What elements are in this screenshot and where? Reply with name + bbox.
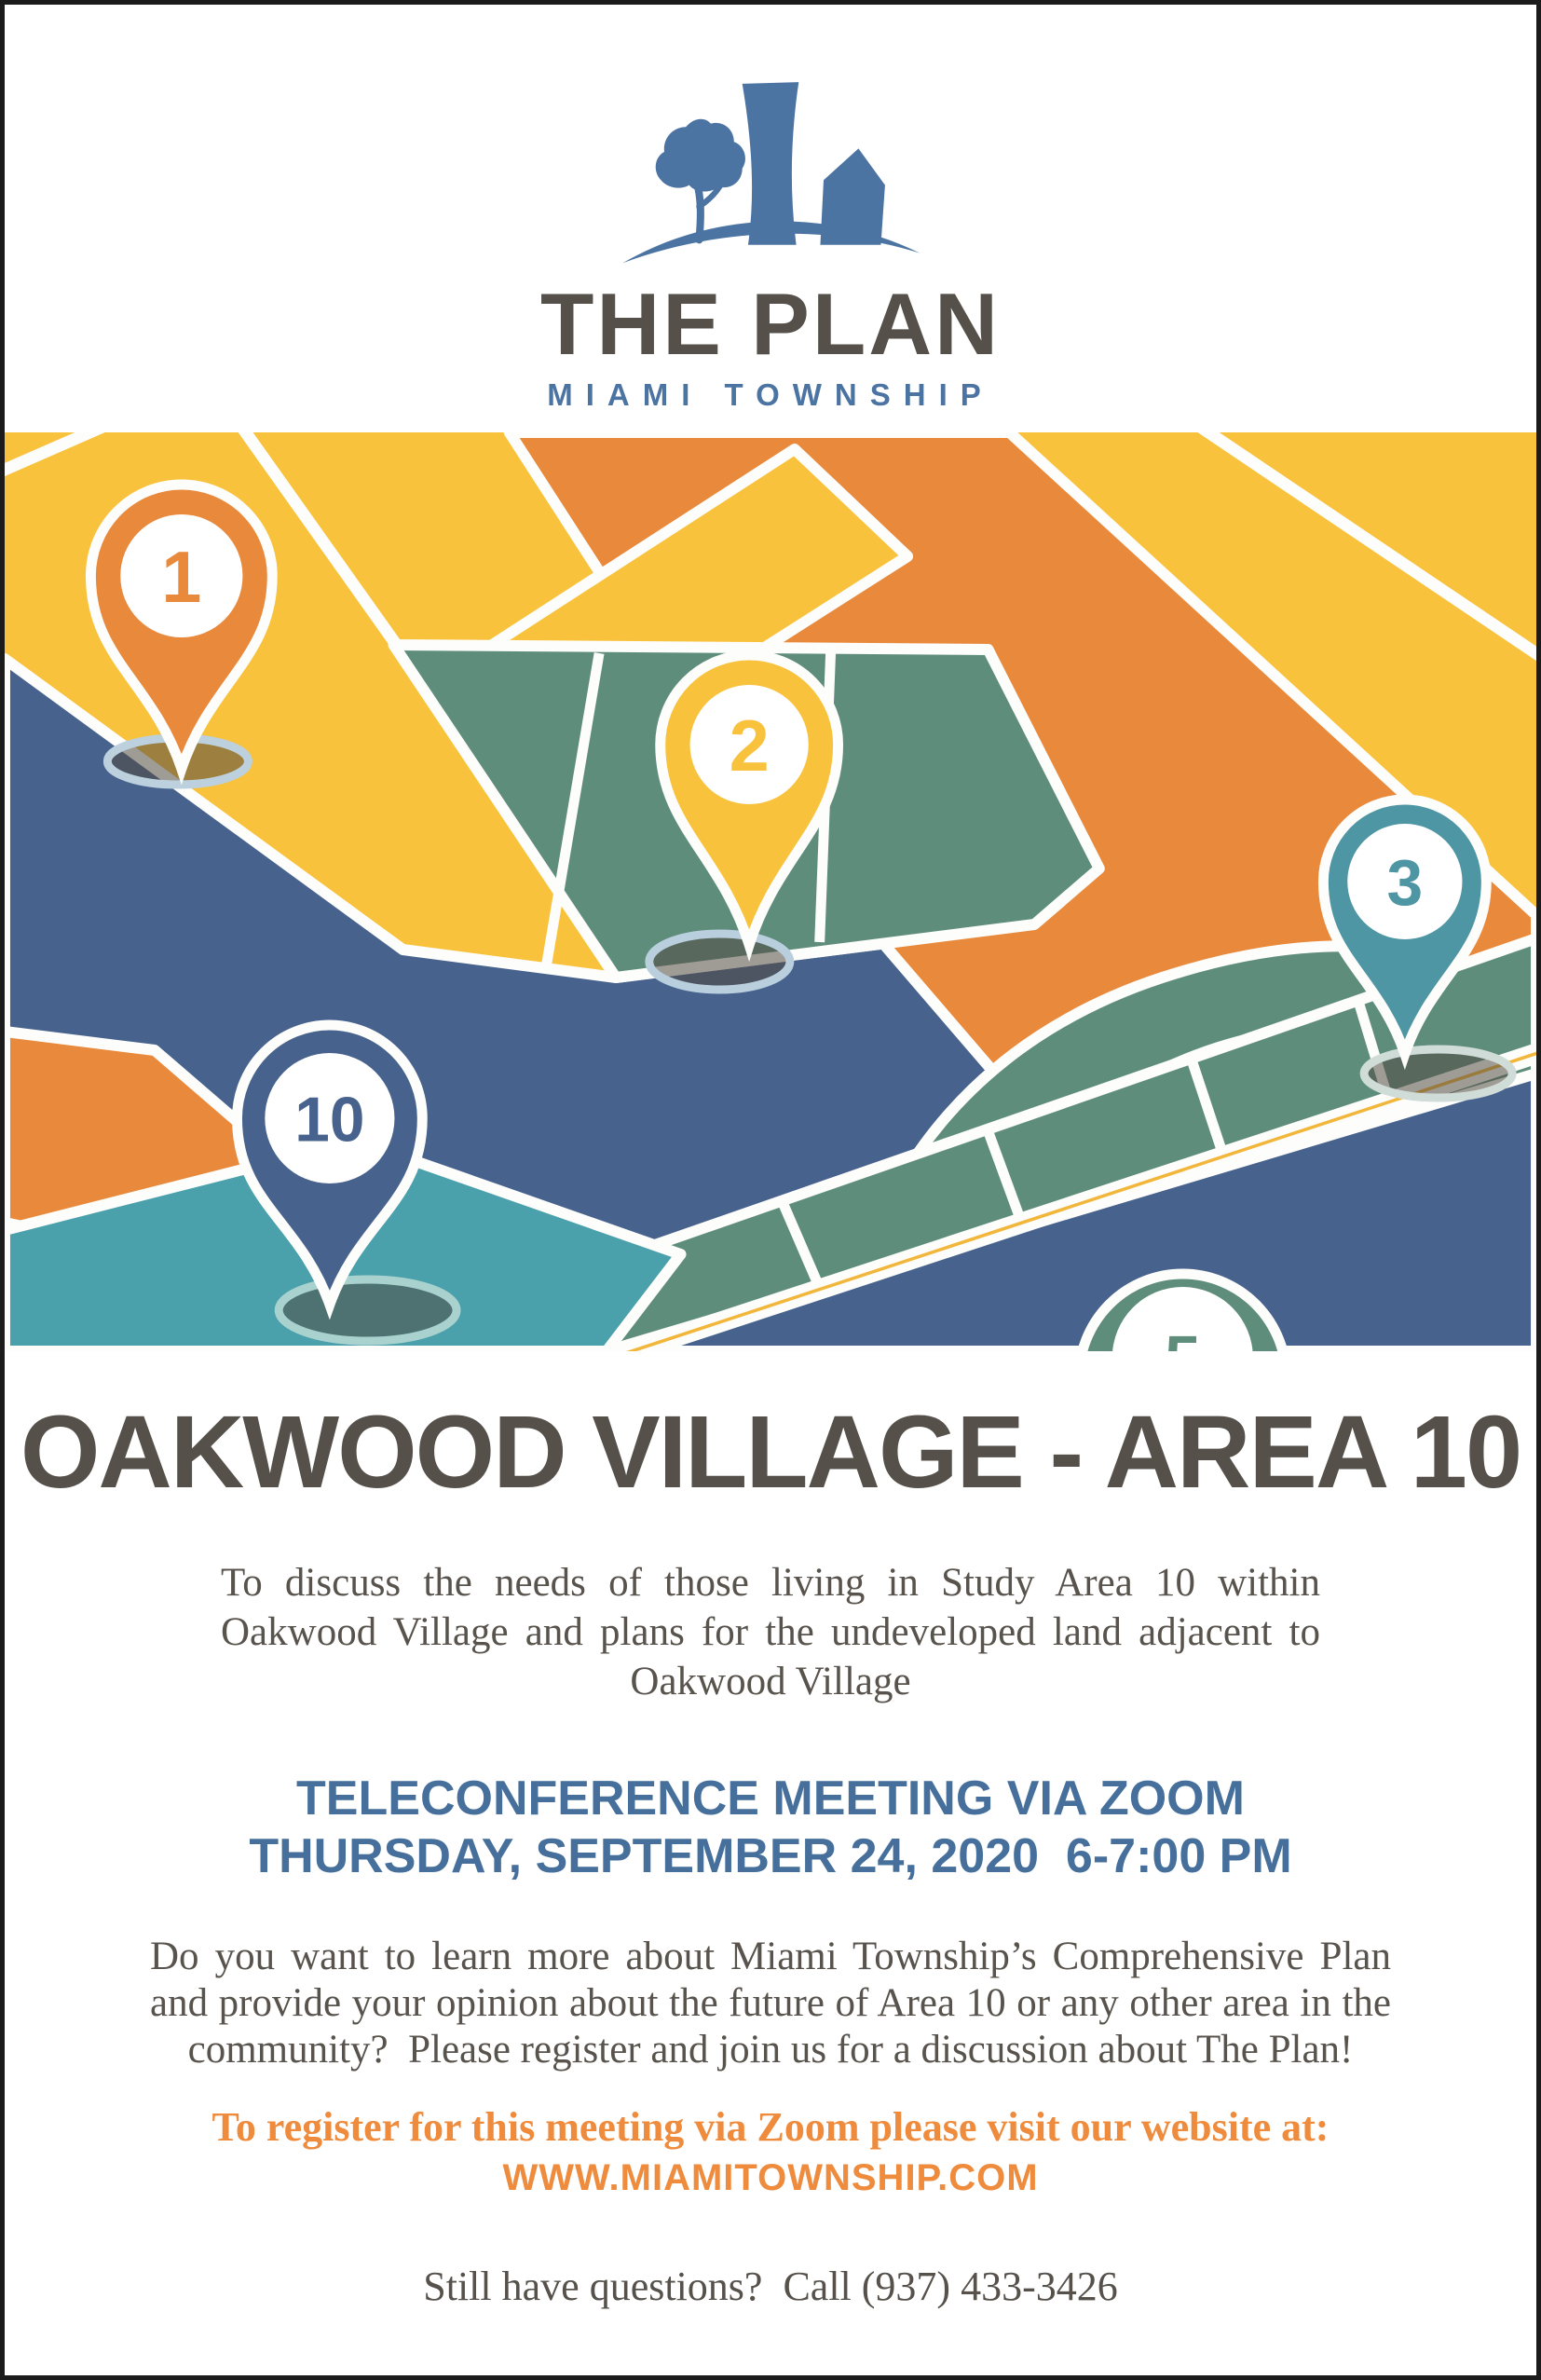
pin-number-1: 1 bbox=[161, 538, 201, 618]
intro-paragraph: To discuss the needs of those living in … bbox=[221, 1558, 1320, 1706]
register-line: To register for this meeting via Zoom pl… bbox=[5, 2101, 1536, 2153]
page-title: OAKWOOD VILLAGE - AREA 10 bbox=[5, 1402, 1536, 1504]
meeting-heading: TELECONFERENCE MEETING VIA ZOOM THURSDAY… bbox=[5, 1770, 1536, 1885]
study-area-map: 123105 bbox=[5, 432, 1536, 1351]
town-skyline-icon bbox=[612, 75, 929, 273]
logo-section: THE PLAN MIAMI TOWNSHIP bbox=[5, 5, 1536, 410]
questions-line: Still have questions? Call (937) 433-342… bbox=[5, 2263, 1536, 2312]
flyer-page: THE PLAN MIAMI TOWNSHIP bbox=[0, 0, 1541, 2380]
pin-number-10: 10 bbox=[294, 1085, 364, 1155]
body-paragraph: Do you want to learn more about Miami To… bbox=[150, 1934, 1391, 2073]
pin-number-3: 3 bbox=[1387, 846, 1424, 919]
tree-icon bbox=[656, 119, 745, 192]
map-illustration: 123105 bbox=[5, 432, 1536, 1351]
tower-shape bbox=[743, 82, 799, 245]
pin-shadow-2 bbox=[649, 934, 790, 990]
tree-trunk bbox=[697, 182, 701, 239]
pin-number-2: 2 bbox=[730, 706, 770, 786]
meeting-line-1: TELECONFERENCE MEETING VIA ZOOM bbox=[5, 1770, 1536, 1827]
logo-subtitle: MIAMI TOWNSHIP bbox=[5, 379, 1536, 410]
logo-title: THE PLAN bbox=[5, 280, 1536, 368]
website-text: WWW.MIAMITOWNSHIP.COM bbox=[5, 2154, 1536, 2201]
pin-shadow-10 bbox=[279, 1279, 457, 1341]
pin-number-5: 5 bbox=[1165, 1322, 1201, 1351]
flyer-content: OAKWOOD VILLAGE - AREA 10 To discuss the… bbox=[5, 1402, 1536, 2312]
pin-shadow-3 bbox=[1364, 1049, 1512, 1098]
meeting-line-2: THURSDAY, SEPTEMBER 24, 2020 6-7:00 PM bbox=[5, 1827, 1536, 1885]
